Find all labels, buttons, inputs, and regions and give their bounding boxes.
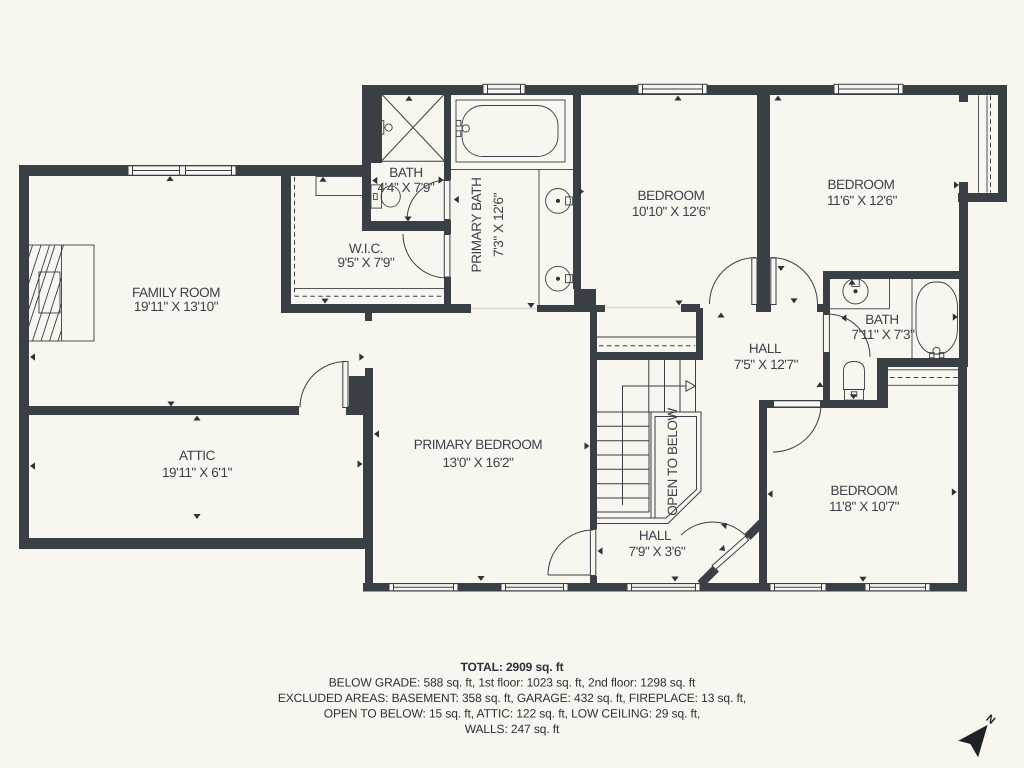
svg-text:9'5" X 7'9": 9'5" X 7'9" <box>338 255 395 270</box>
svg-text:7'11" X 7'3": 7'11" X 7'3" <box>852 327 916 342</box>
svg-text:19'11" X 6'1": 19'11" X 6'1" <box>162 465 233 480</box>
svg-text:OPEN TO BELOW: 15 sq. ft, ATTI: OPEN TO BELOW: 15 sq. ft, ATTIC: 122 sq.… <box>324 707 700 721</box>
svg-text:7'9" X 3'6": 7'9" X 3'6" <box>629 544 686 559</box>
svg-text:11'6" X 12'6": 11'6" X 12'6" <box>827 193 898 208</box>
svg-text:WALLS: 247 sq. ft: WALLS: 247 sq. ft <box>465 722 560 736</box>
svg-text:BELOW GRADE: 588 sq. ft, 1st f: BELOW GRADE: 588 sq. ft, 1st floor: 1023… <box>329 676 696 690</box>
svg-text:BEDROOM: BEDROOM <box>638 188 705 203</box>
svg-text:FAMILY ROOM: FAMILY ROOM <box>132 285 220 300</box>
svg-text:ATTIC: ATTIC <box>179 448 216 463</box>
svg-text:TOTAL: 2909 sq. ft: TOTAL: 2909 sq. ft <box>460 660 563 674</box>
svg-text:OPEN TO BELOW: OPEN TO BELOW <box>665 408 680 516</box>
svg-text:W.I.C.: W.I.C. <box>349 241 383 256</box>
svg-text:11'8" X 10'7": 11'8" X 10'7" <box>829 499 900 514</box>
svg-text:BEDROOM: BEDROOM <box>831 483 898 498</box>
svg-text:19'11" X 13'10": 19'11" X 13'10" <box>134 299 219 314</box>
svg-text:BATH: BATH <box>389 165 422 180</box>
svg-text:BEDROOM: BEDROOM <box>828 177 895 192</box>
svg-text:4'4" X 7'9": 4'4" X 7'9" <box>378 180 435 195</box>
svg-text:7'5" X 12'7": 7'5" X 12'7" <box>734 357 799 372</box>
svg-text:BATH: BATH <box>865 312 898 327</box>
svg-text:PRIMARY BATH: PRIMARY BATH <box>469 178 484 273</box>
svg-text:PRIMARY BEDROOM: PRIMARY BEDROOM <box>414 437 543 452</box>
svg-text:HALL: HALL <box>639 528 672 543</box>
svg-text:7'3" X 12'6": 7'3" X 12'6" <box>491 192 506 257</box>
svg-text:HALL: HALL <box>749 341 782 356</box>
svg-text:EXCLUDED AREAS: BASEMENT: 358: EXCLUDED AREAS: BASEMENT: 358 sq. ft, GA… <box>278 691 746 705</box>
svg-text:13'0" X 16'2": 13'0" X 16'2" <box>442 455 514 470</box>
svg-text:10'10" X 12'6": 10'10" X 12'6" <box>632 204 711 219</box>
